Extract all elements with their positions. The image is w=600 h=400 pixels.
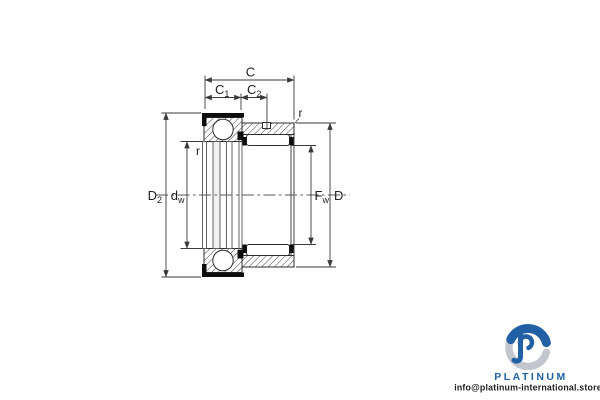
label-r-inner: r: [196, 144, 200, 158]
needle-lip-top-left: [243, 137, 247, 146]
brand-name: PLATINUM: [494, 371, 567, 383]
cap-bottom: [202, 273, 244, 278]
axial-ball-section-bottom: [204, 249, 242, 273]
logo-swirl-icon: [509, 328, 546, 366]
oil-hole-notch: [263, 123, 271, 129]
ball-top: [213, 119, 233, 139]
needle-lip-bottom-left: [243, 245, 247, 254]
bearing-drawing-canvas: C C1 C2 r r D2 dw Fw D PLATINUM info@pla…: [0, 0, 600, 400]
technical-drawing-page: C C1 C2 r r D2 dw Fw D PLATINUM info@pla…: [0, 0, 600, 400]
cap-top-lip: [202, 118, 207, 127]
platinum-logo: PLATINUM info@platinum-international.sto…: [454, 328, 600, 392]
cap-bottom-lip: [202, 264, 207, 273]
outer-ring-hatch-bottom: [242, 256, 294, 268]
needle-section-bottom: [242, 245, 294, 268]
label-d: D: [334, 188, 343, 203]
needle-lip-top-right: [290, 137, 294, 146]
label-c2: C2: [247, 82, 261, 99]
label-c1: C1: [215, 82, 229, 99]
label-dw: dw: [171, 188, 185, 205]
needle-lip-bottom-right: [290, 245, 294, 254]
label-c: C: [246, 65, 255, 80]
logo-p-bowl: [520, 336, 532, 347]
label-fw: Fw: [315, 188, 330, 205]
cap-top: [202, 113, 244, 118]
label-d2: D2: [148, 188, 162, 205]
axial-ball-section-top: [204, 118, 242, 142]
brand-email: info@platinum-international.store: [454, 383, 600, 393]
label-r-outer: r: [299, 106, 303, 120]
needle-roller-bottom: [247, 245, 290, 256]
needle-section-top: [242, 123, 294, 146]
ball-bottom: [213, 250, 233, 270]
logo-gray-arc-bottom-right: [530, 352, 547, 366]
needle-roller-top: [247, 135, 290, 146]
